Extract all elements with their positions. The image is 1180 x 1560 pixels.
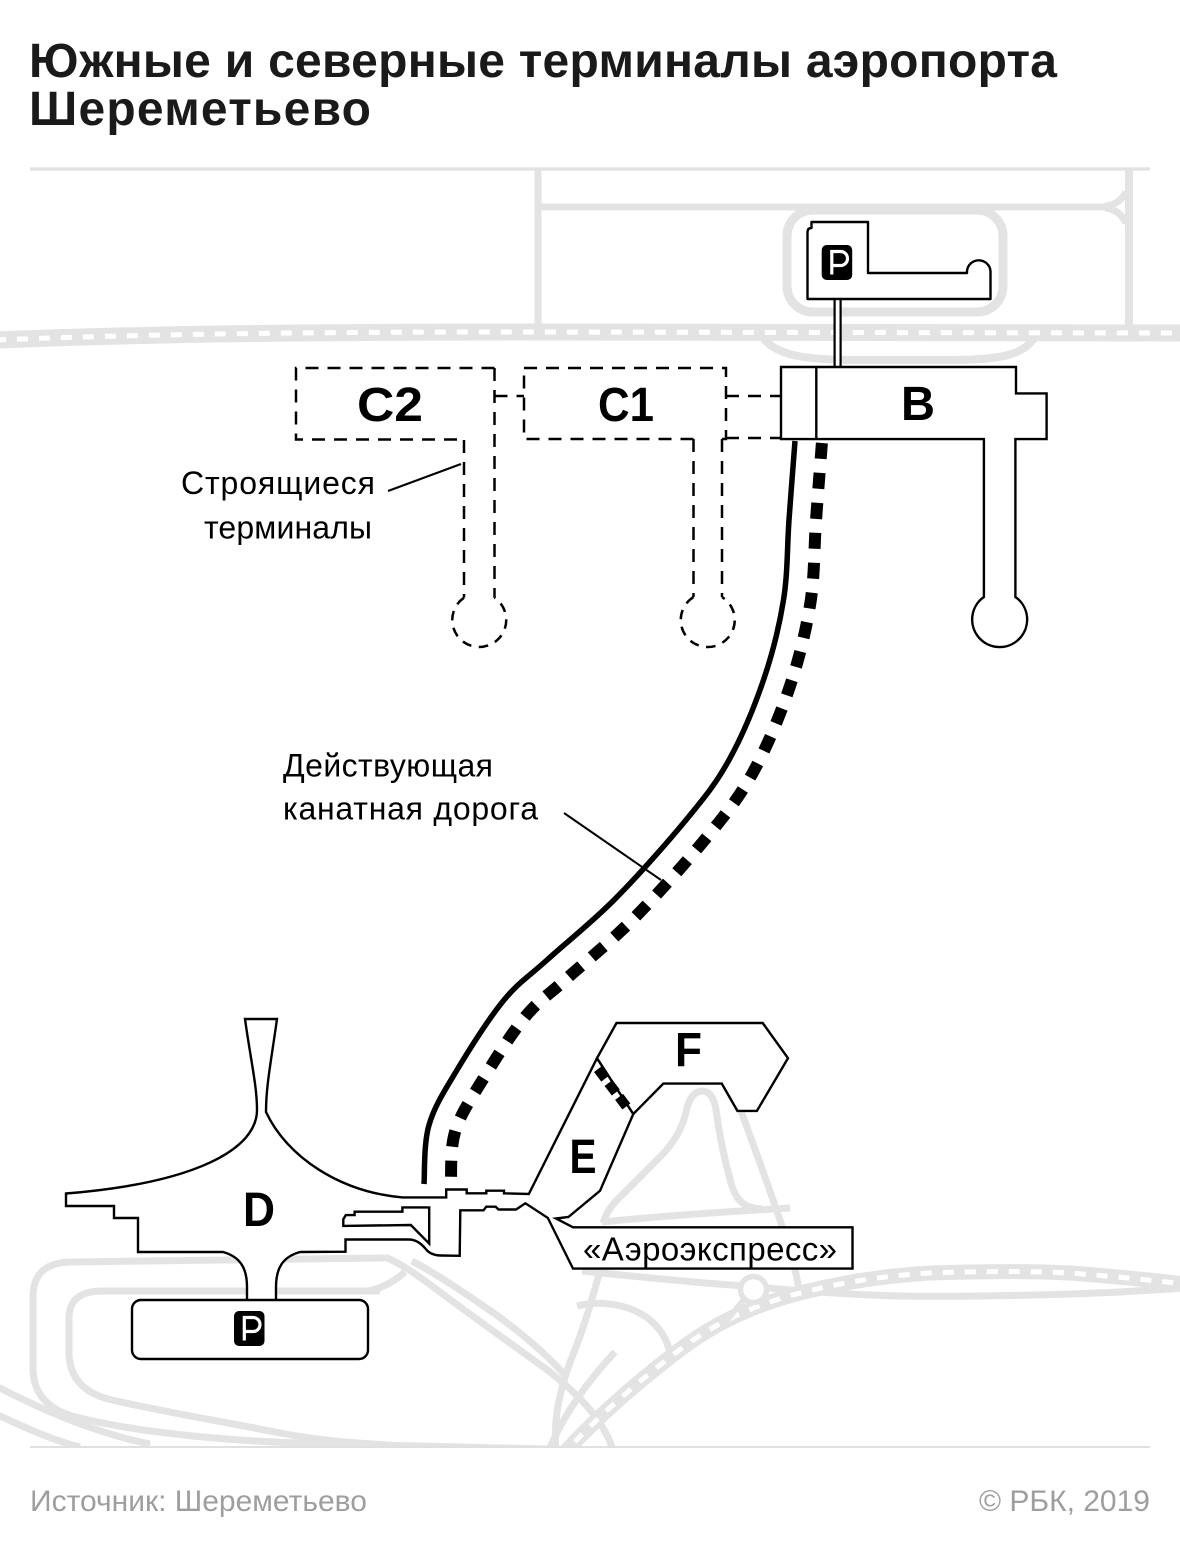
svg-text:C2: C2	[357, 379, 423, 432]
svg-text:Шереметьево: Шереметьево	[29, 83, 371, 136]
svg-text:Источник: Шереметьево: Источник: Шереметьево	[30, 1485, 367, 1518]
svg-text:D: D	[243, 1184, 275, 1237]
svg-text:канатная дорога: канатная дорога	[283, 791, 538, 827]
svg-text:Южные и северные терминалы аэр: Южные и северные терминалы аэропорта	[29, 35, 1057, 88]
svg-text:Строящиеся: Строящиеся	[181, 465, 375, 501]
svg-text:«Аэроэкспресс»: «Аэроэкспресс»	[583, 1231, 837, 1268]
svg-text:C1: C1	[598, 379, 654, 432]
svg-text:B: B	[901, 378, 935, 431]
svg-text:© РБК, 2019: © РБК, 2019	[979, 1485, 1150, 1518]
svg-text:F: F	[675, 1024, 702, 1077]
svg-text:E: E	[570, 1131, 597, 1184]
svg-text:терминалы: терминалы	[204, 510, 372, 546]
svg-text:Действующая: Действующая	[283, 748, 493, 784]
